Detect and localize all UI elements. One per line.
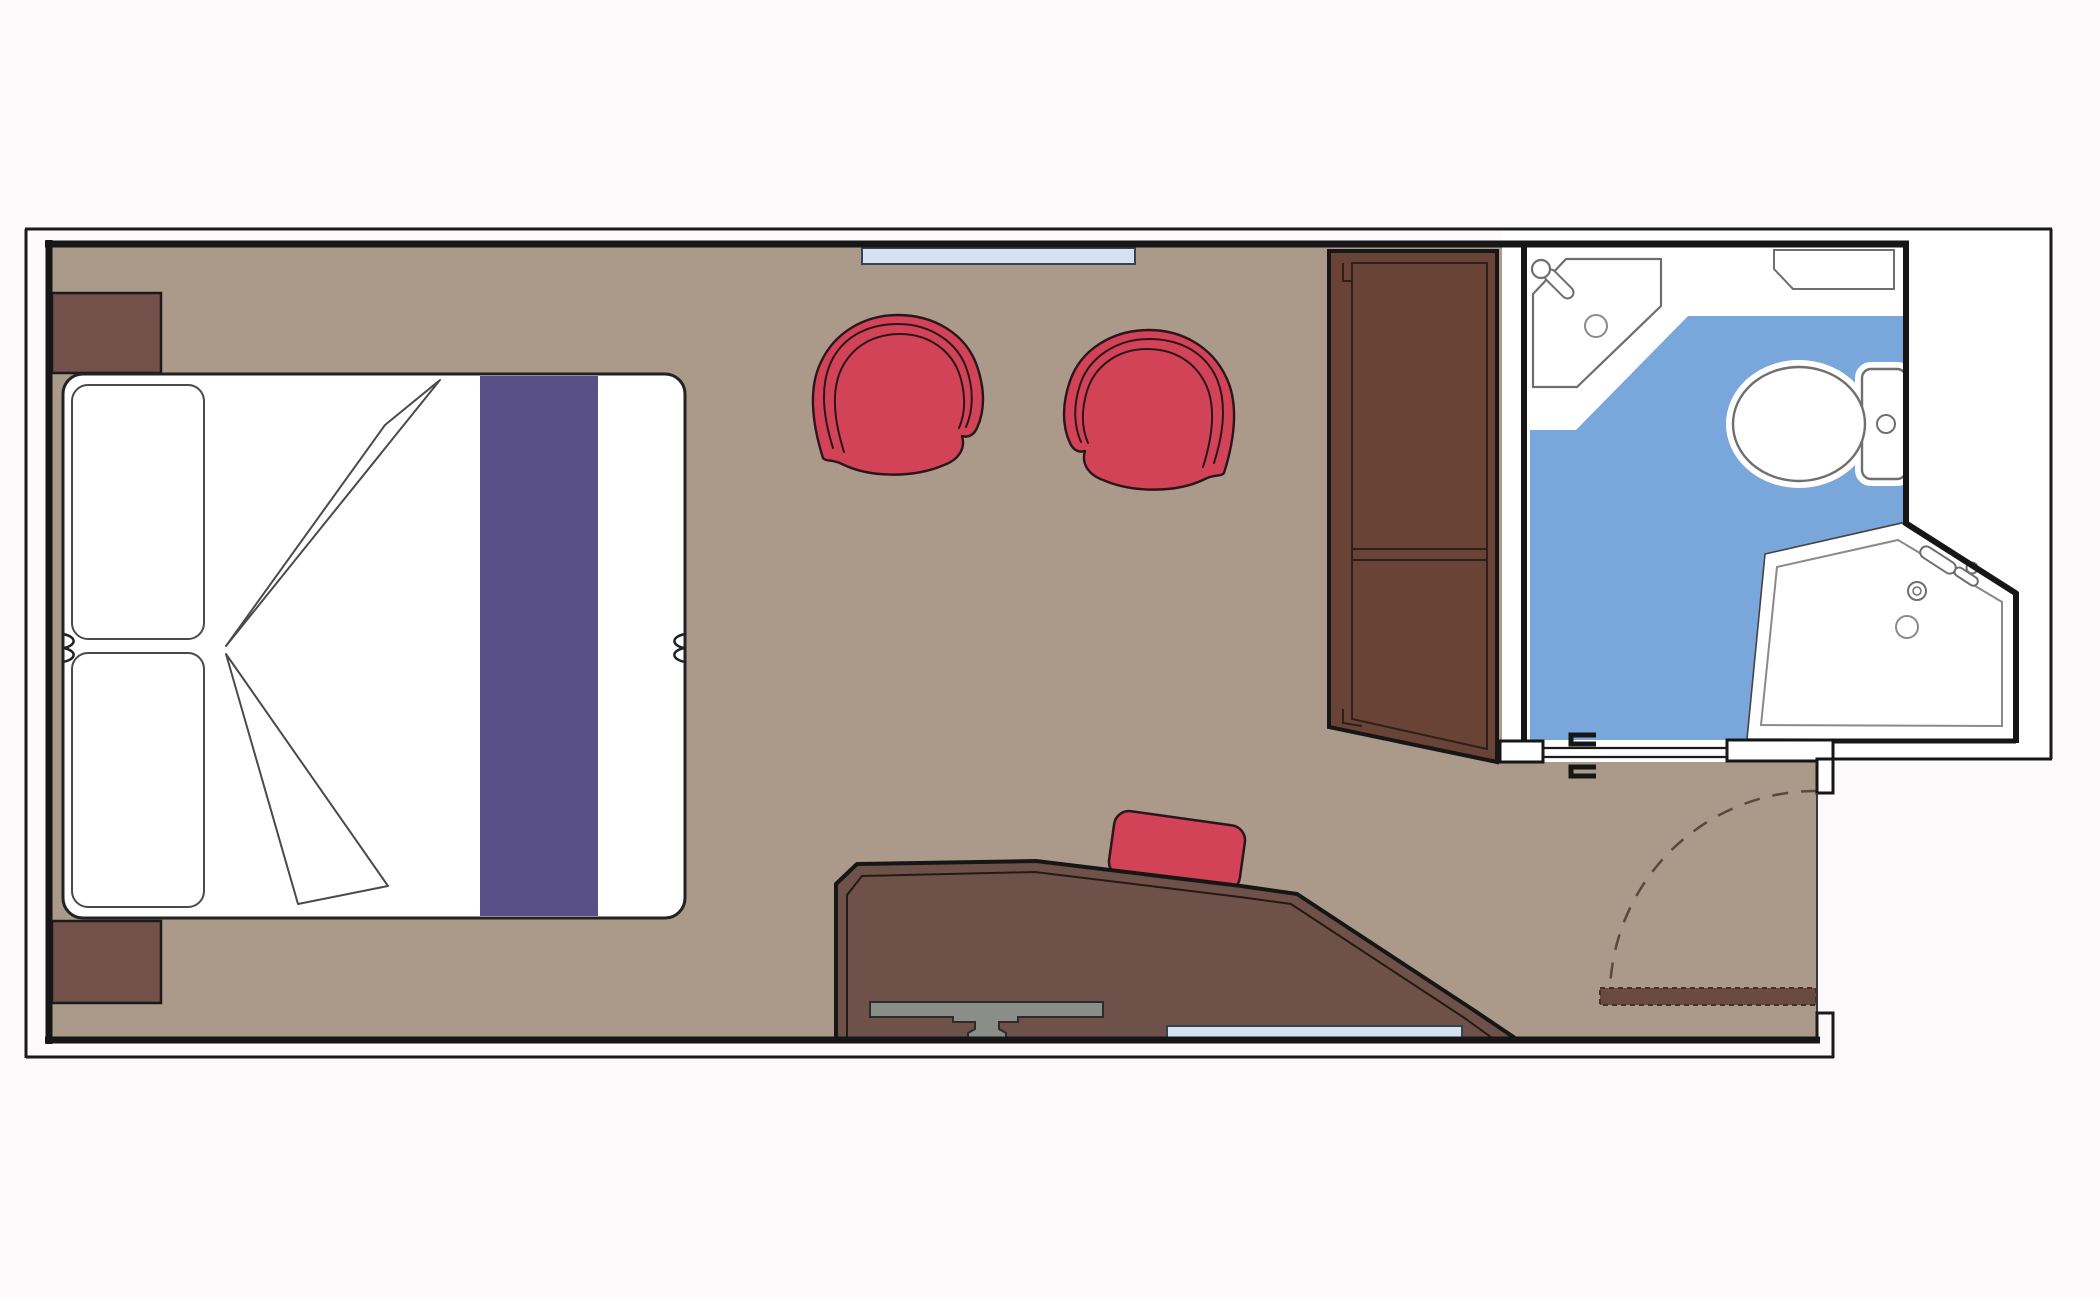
bathroom [1502,229,2052,762]
wardrobe-body [1329,251,1497,762]
lounge-chair-left [813,315,983,475]
faucet-knob-icon [1532,260,1550,278]
pillow-lower [72,653,204,907]
window-top [862,248,1135,264]
vanity-shelf [1774,250,1894,289]
floor-plan-page [0,0,2100,1299]
toilet [1733,367,1906,481]
entrance-door-leaf [1600,988,1816,1005]
wardrobe [1329,251,1497,762]
cabin-floor-plan [0,0,2100,1299]
lounge-chair-right [1064,330,1234,490]
toilet-bowl [1733,367,1865,481]
pillow-upper [72,385,204,639]
bath-wall-pier-left [1500,741,1543,762]
nightstand-lower [52,921,161,1003]
toilet-flush-icon [1877,415,1895,433]
door-jamb-pier [1817,759,1833,793]
double-bed [63,374,685,918]
nightstand-upper [52,293,161,373]
bed-runner [480,376,598,916]
